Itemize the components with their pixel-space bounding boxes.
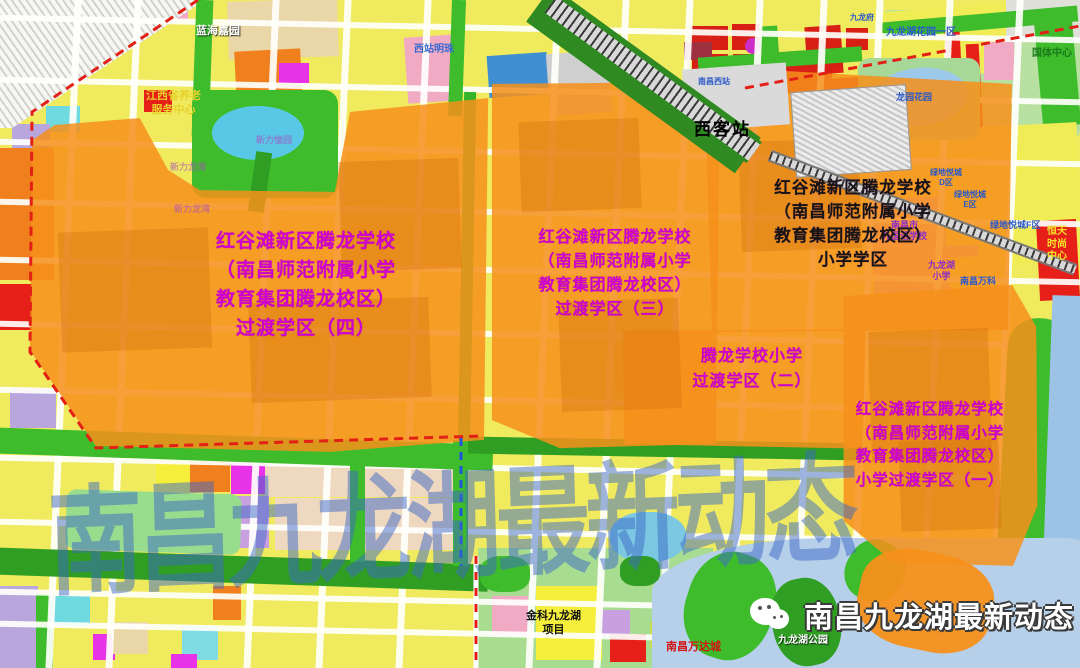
district-label-1: 红谷滩新区腾龙学校（南昌师范附属小学教育集团腾龙校区）过渡学区（四）: [175, 227, 437, 343]
map-parcel: [10, 388, 56, 428]
watermark-text: 南昌九龙湖最新动态: [46, 413, 857, 619]
district-label-line: （南昌师范附属小学: [175, 256, 437, 285]
district-label-line: （南昌师范附属小学: [742, 200, 964, 224]
district-label-2: 红谷滩新区腾龙学校（南昌师范附属小学教育集团腾龙校区）过渡学区（三）: [515, 226, 715, 322]
station-label: 西客站: [694, 115, 751, 140]
district-label-line: 红谷滩新区腾龙学校: [742, 176, 964, 200]
map-label: 西站明珠: [414, 44, 454, 57]
district-label-line: 教育集团腾龙校区）: [515, 274, 715, 298]
district-label-line: （南昌师范附属小学: [833, 422, 1027, 446]
map-label: 南昌西站: [698, 77, 730, 87]
map-label: 恒天 时尚 中心: [1047, 226, 1067, 264]
map-label: 新力龙湾: [174, 204, 210, 215]
district-label-4: 腾龙学校小学过渡学区（二）: [668, 344, 836, 394]
map-label: 南昌万达城: [666, 641, 721, 655]
district-label-line: 教育集团腾龙校区）: [833, 445, 1027, 469]
logo-text: 南昌九龙湖最新动态: [804, 594, 1074, 636]
district-label-line: 小学学区: [742, 248, 964, 272]
district-label-line: 过渡学区（三）: [515, 298, 715, 322]
district-label-line: 教育集团腾龙校区）: [742, 224, 964, 248]
logo-bar: 南昌九龙湖最新动态: [750, 594, 1074, 636]
district-label-line: 红谷滩新区腾龙学校: [833, 398, 1027, 422]
district-label-3: 红谷滩新区腾龙学校（南昌师范附属小学教育集团腾龙校区）小学学区: [742, 176, 964, 272]
map-label: 绿地悦城F区: [990, 220, 1041, 231]
map-parcel: [279, 63, 309, 83]
map-label: 九龙府: [850, 13, 874, 23]
district-label-line: （南昌师范附属小学: [515, 250, 715, 274]
wechat-icon: [750, 594, 796, 636]
map-label: 金科九龙湖 项目: [526, 610, 581, 638]
map-parcel: [984, 42, 1014, 80]
map-label: 江西省养老 服务中心: [146, 90, 201, 118]
map-label: 南昌万科: [960, 276, 996, 287]
district-label-5: 红谷滩新区腾龙学校（南昌师范附属小学教育集团腾龙校区）小学过渡学区（一）: [833, 398, 1027, 492]
planning-map: 西客站 红谷滩新区腾龙学校（南昌师范附属小学教育集团腾龙校区）过渡学区（四）红谷…: [0, 0, 1080, 668]
map-label: 九龙湖公园: [778, 635, 828, 648]
district-label-line: 过渡学区（四）: [175, 314, 437, 343]
map-parcel: [600, 610, 630, 636]
district-label-line: 教育集团腾龙校区）: [175, 285, 437, 314]
map-label: 龙园花园: [896, 92, 932, 103]
map-label: 新力愉园: [256, 135, 292, 146]
map-label: 新力龙湾: [170, 162, 206, 173]
district-label-line: 小学过渡学区（一）: [833, 469, 1027, 493]
map-label: 九龙湖花园一区: [886, 27, 956, 40]
overlay-texture-patch: [518, 118, 641, 212]
district-label-line: 红谷滩新区腾龙学校: [175, 227, 437, 256]
map-label: 国体中心: [1032, 48, 1072, 61]
district-label-line: 过渡学区（二）: [668, 369, 836, 394]
district-label-line: 红谷滩新区腾龙学校: [515, 226, 715, 250]
map-label: 蓝海嘉园: [196, 25, 240, 39]
map-parcel: [171, 654, 197, 668]
district-label-line: 腾龙学校小学: [668, 344, 836, 369]
